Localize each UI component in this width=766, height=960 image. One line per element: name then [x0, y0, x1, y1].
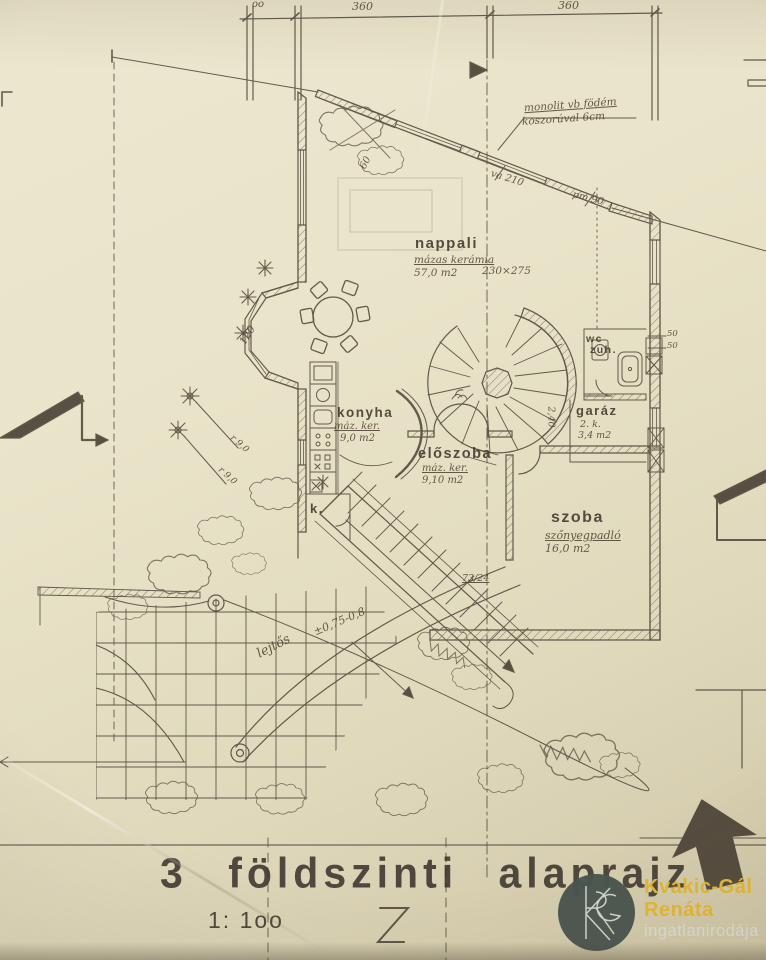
kgr-monogram-icon — [558, 874, 635, 951]
room-label-nappali: nappali — [415, 236, 478, 252]
shaft-dim-b: 50 — [667, 342, 678, 351]
room-label-eloszoba: előszoba — [418, 447, 492, 462]
eloszoba-finish: máz. ker. — [422, 464, 468, 475]
garaz-note: 2. k. — [580, 420, 601, 430]
watermark-name-1: Kvakic-Gál — [644, 876, 752, 899]
stamp-mark — [378, 908, 408, 942]
stair-note: 73/24 — [462, 574, 489, 584]
dim-360-b: 360 — [558, 0, 579, 12]
paper-shading-bottom — [0, 942, 766, 960]
dim-360-a: 360 — [352, 1, 373, 13]
centerline-flag — [470, 62, 487, 78]
watermark-logo-circle — [558, 874, 635, 951]
room-label-szoba: szoba — [551, 510, 604, 527]
vegetation — [108, 105, 641, 816]
konyha-area: 9,0 m2 — [340, 434, 375, 445]
right-wall — [609, 203, 660, 640]
spiral-staircase — [428, 308, 576, 465]
section-marker-right — [714, 470, 766, 540]
dim-top-partial: oo — [252, 0, 264, 11]
chairs — [300, 280, 370, 354]
scanned-floorplan-page: oo 360 360 monolit vb födém koszorúval 6… — [0, 0, 766, 960]
room-label-kamra: k. — [310, 502, 324, 516]
szoba-area: 16,0 m2 — [545, 543, 590, 555]
nappali-size: 230×275 — [482, 266, 531, 277]
shaft-dim-a: 50 — [667, 330, 678, 339]
room-label-garaz: garáz — [576, 404, 617, 418]
floorplan-drawing — [0, 0, 766, 960]
diagonal-roof-line — [112, 50, 766, 251]
dining-table — [300, 280, 370, 354]
eloszoba-area: 9,10 m2 — [422, 476, 463, 487]
left-wall — [298, 92, 306, 282]
dim-side: 2,40 — [546, 406, 556, 427]
room-label-konyha: konyha — [337, 406, 393, 420]
konyha-finish: máz. ker. — [334, 422, 380, 433]
room-label-zuh: zuh. — [590, 345, 617, 356]
section-marker-left — [0, 392, 108, 446]
kitchen-wall — [298, 389, 306, 558]
axis-lines — [114, 60, 597, 960]
nappali-area: 57,0 m2 — [414, 268, 457, 279]
door-leaf-ornament — [452, 390, 467, 399]
watermark-name-2: Renáta — [644, 899, 714, 922]
watermark-subtitle: ingatlanirodája — [644, 922, 759, 941]
szoba-finish: szőnyegpadló — [545, 530, 621, 542]
garaz-area: 3,4 m2 — [578, 431, 611, 441]
